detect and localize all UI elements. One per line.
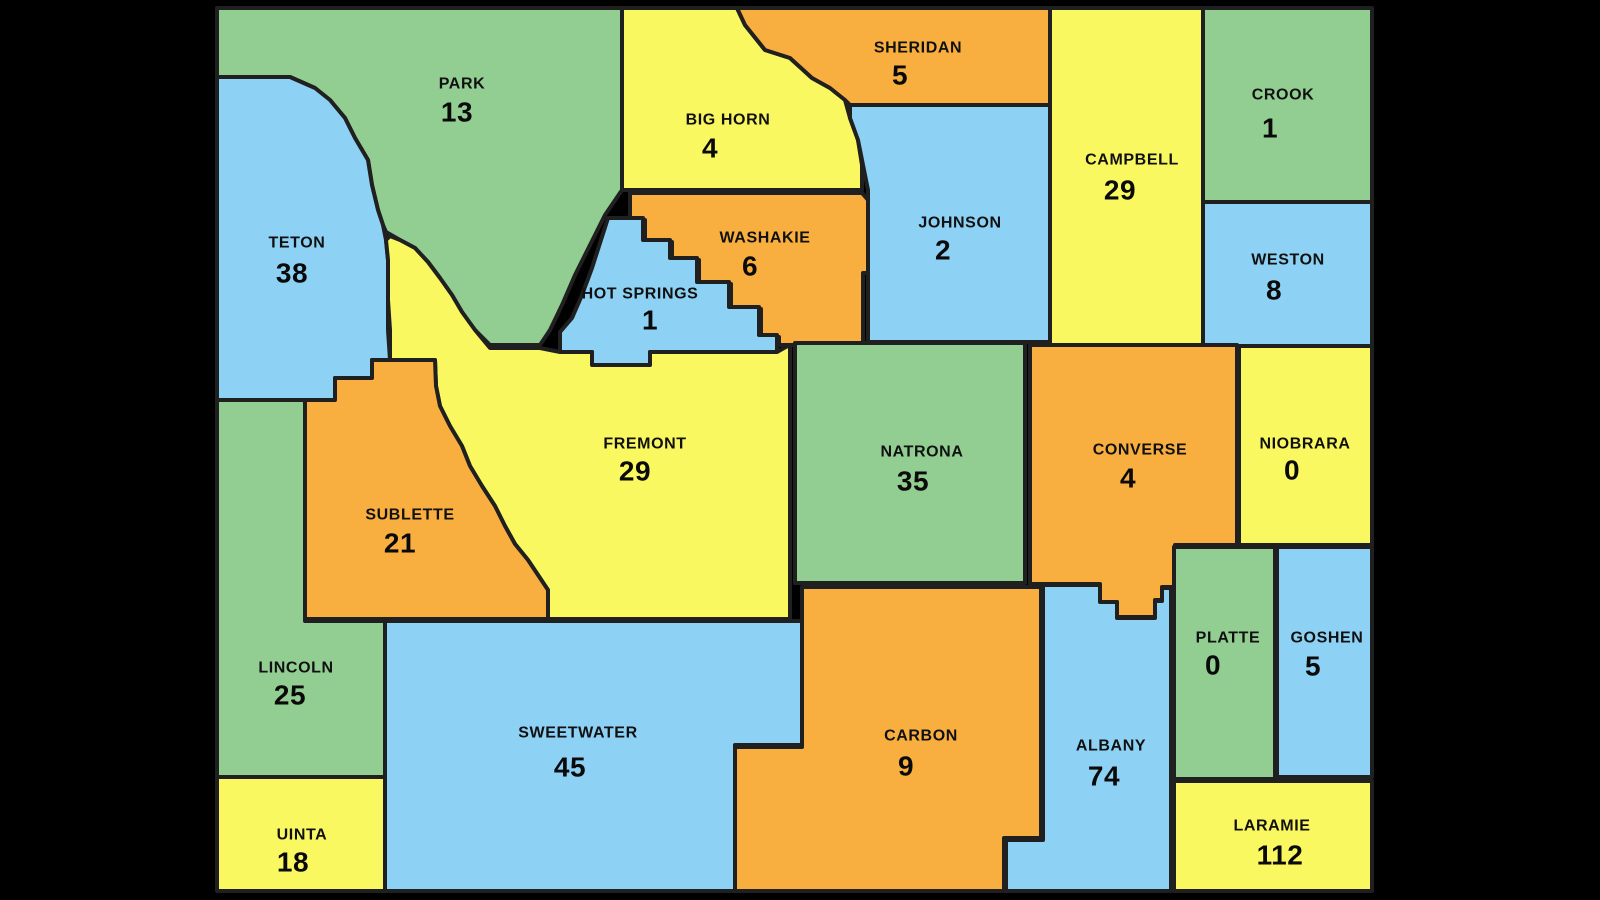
county-value-laramie: 112 <box>1257 840 1304 871</box>
county-value-big-horn: 4 <box>702 133 718 164</box>
county-value-park: 13 <box>441 97 473 128</box>
county-value-teton: 38 <box>276 258 308 289</box>
county-name-big-horn: BIG HORN <box>686 112 771 129</box>
wyoming-county-map: PARK13BIG HORN4SHERIDAN5CAMPBELL29CROOK1… <box>0 0 1600 900</box>
county-name-sheridan: SHERIDAN <box>874 40 962 57</box>
county-value-sublette: 21 <box>384 528 416 559</box>
county-value-converse: 4 <box>1120 463 1136 494</box>
county-name-converse: CONVERSE <box>1093 442 1188 459</box>
county-name-goshen: GOSHEN <box>1291 630 1364 647</box>
county-value-niobrara: 0 <box>1284 455 1300 486</box>
county-name-teton: TETON <box>269 235 326 252</box>
county-name-johnson: JOHNSON <box>918 215 1001 232</box>
county-value-fremont: 29 <box>619 456 651 487</box>
county-name-crook: CROOK <box>1252 87 1315 104</box>
county-name-hot-springs: HOT SPRINGS <box>582 286 699 303</box>
county-value-campbell: 29 <box>1104 175 1136 206</box>
county-name-uinta: UINTA <box>277 827 328 844</box>
county-name-albany: ALBANY <box>1076 738 1146 755</box>
map-stage: PARK13BIG HORN4SHERIDAN5CAMPBELL29CROOK1… <box>0 0 1600 900</box>
county-name-niobrara: NIOBRARA <box>1259 436 1350 453</box>
county-value-johnson: 2 <box>935 235 951 266</box>
county-name-laramie: LARAMIE <box>1233 818 1310 835</box>
county-name-lincoln: LINCOLN <box>258 660 333 677</box>
county-value-lincoln: 25 <box>274 680 306 711</box>
county-value-uinta: 18 <box>277 847 309 878</box>
county-value-washakie: 6 <box>742 251 758 282</box>
county-name-sublette: SUBLETTE <box>365 507 454 524</box>
county-name-natrona: NATRONA <box>880 444 963 461</box>
county-name-fremont: FREMONT <box>603 436 686 453</box>
county-value-sheridan: 5 <box>892 60 908 91</box>
county-name-campbell: CAMPBELL <box>1085 152 1179 169</box>
county-value-weston: 8 <box>1266 275 1282 306</box>
county-value-crook: 1 <box>1262 113 1278 144</box>
county-value-hot-springs: 1 <box>642 305 658 336</box>
county-region-crook <box>1203 8 1372 202</box>
county-name-weston: WESTON <box>1251 252 1325 269</box>
county-name-park: PARK <box>439 76 486 93</box>
county-value-platte: 0 <box>1205 650 1221 681</box>
county-region-goshen <box>1277 547 1372 777</box>
county-region-weston <box>1203 202 1372 346</box>
county-value-albany: 74 <box>1088 761 1120 792</box>
county-name-washakie: WASHAKIE <box>719 230 810 247</box>
county-value-carbon: 9 <box>898 751 914 782</box>
county-region-laramie <box>1174 781 1372 891</box>
county-name-sweetwater: SWEETWATER <box>518 725 637 742</box>
county-name-carbon: CARBON <box>884 728 958 745</box>
county-value-sweetwater: 45 <box>554 752 586 783</box>
county-value-natrona: 35 <box>897 466 929 497</box>
county-region-platte <box>1174 547 1275 779</box>
county-name-platte: PLATTE <box>1196 630 1261 647</box>
county-region-natrona <box>795 343 1025 583</box>
county-value-goshen: 5 <box>1305 651 1321 682</box>
